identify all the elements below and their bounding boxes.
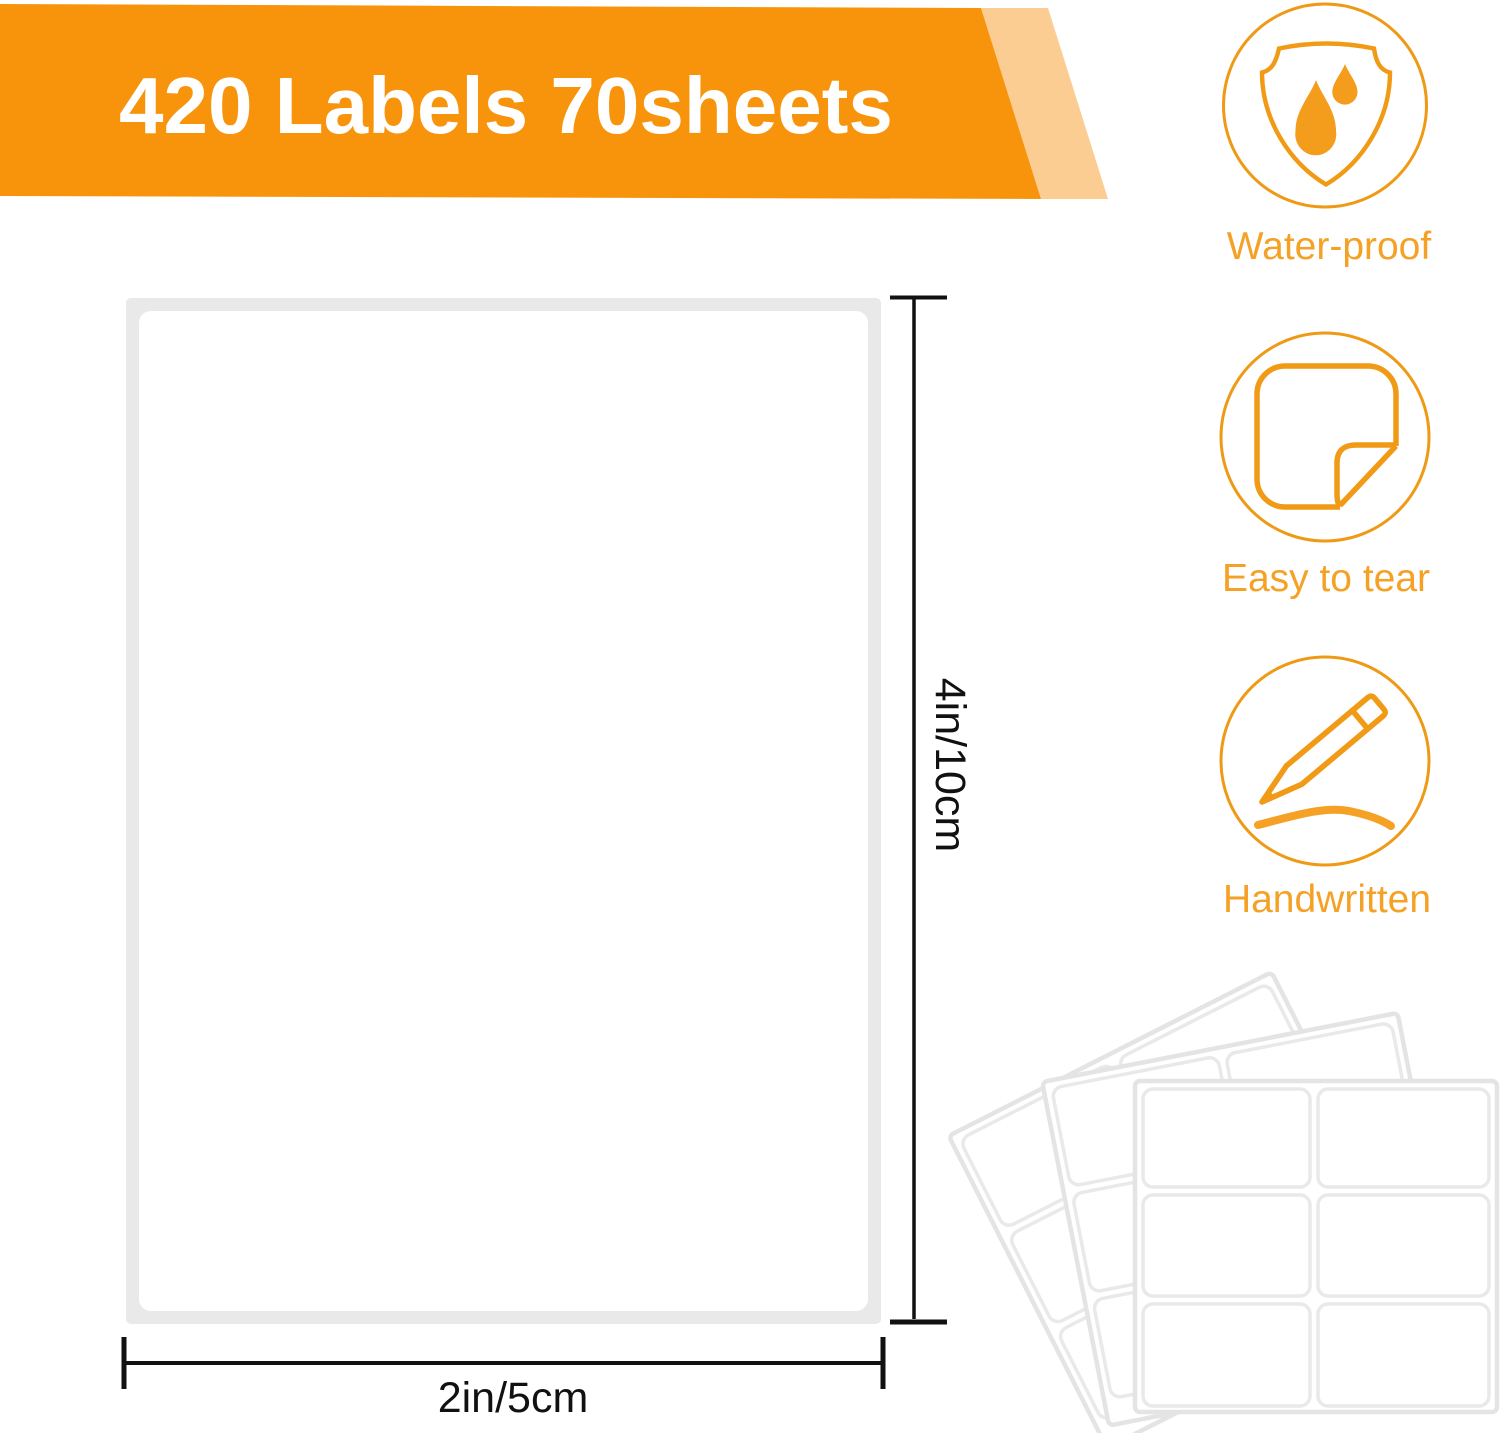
svg-text:Easy to tear: Easy to tear	[1222, 557, 1430, 600]
svg-text:Water-proof: Water-proof	[1227, 225, 1432, 268]
svg-text:2in/5cm: 2in/5cm	[438, 1374, 589, 1422]
svg-text:Handwritten: Handwritten	[1223, 878, 1431, 921]
svg-text:420 Labels 70sheets: 420 Labels 70sheets	[119, 61, 893, 150]
svg-text:4in/10cm: 4in/10cm	[926, 678, 974, 852]
